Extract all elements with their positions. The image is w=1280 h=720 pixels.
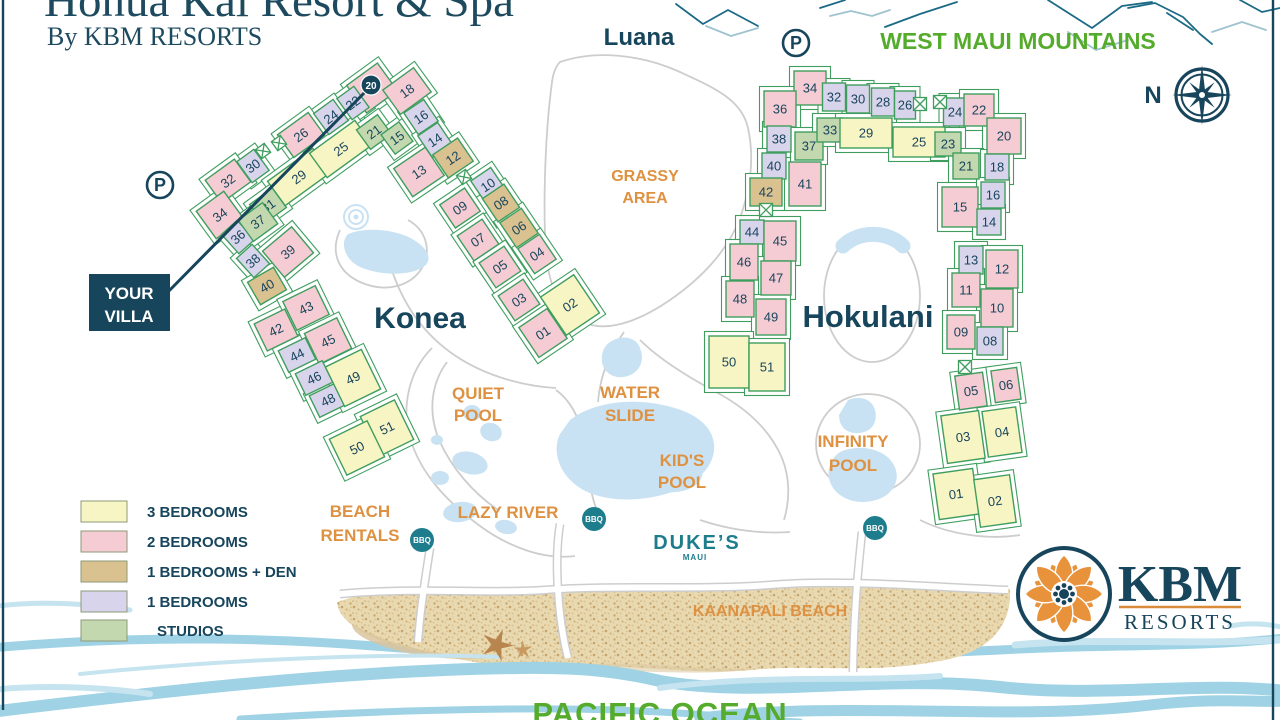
svg-text:BEACH: BEACH <box>330 502 390 521</box>
svg-text:WATER: WATER <box>600 383 660 402</box>
svg-text:VILLA: VILLA <box>104 307 153 326</box>
svg-text:37: 37 <box>802 139 816 154</box>
svg-text:02: 02 <box>987 493 1003 510</box>
svg-text:09: 09 <box>954 325 968 340</box>
svg-text:25: 25 <box>912 135 926 150</box>
svg-text:42: 42 <box>759 185 773 200</box>
svg-text:08: 08 <box>983 334 997 349</box>
svg-text:MAUI: MAUI <box>683 553 707 562</box>
svg-text:18: 18 <box>990 160 1004 175</box>
svg-text:KAANAPALI BEACH: KAANAPALI BEACH <box>693 603 847 620</box>
svg-text:20: 20 <box>997 129 1011 144</box>
svg-text:05: 05 <box>963 383 979 400</box>
svg-text:N: N <box>1144 82 1161 109</box>
svg-text:16: 16 <box>986 188 1000 203</box>
svg-text:AREA: AREA <box>622 190 668 207</box>
svg-text:28: 28 <box>876 95 890 110</box>
svg-text:47: 47 <box>769 271 783 286</box>
svg-text:BBQ: BBQ <box>585 515 603 524</box>
svg-text:12: 12 <box>995 262 1009 277</box>
svg-text:29: 29 <box>859 126 873 141</box>
svg-text:SLIDE: SLIDE <box>605 406 655 425</box>
svg-text:KID'S: KID'S <box>660 451 705 470</box>
svg-text:34: 34 <box>803 81 817 96</box>
svg-text:10: 10 <box>990 301 1004 316</box>
svg-text:30: 30 <box>851 92 865 107</box>
svg-text:49: 49 <box>764 310 778 325</box>
svg-text:KBM: KBM <box>1118 556 1242 613</box>
svg-text:20: 20 <box>365 81 377 92</box>
svg-text:33: 33 <box>823 123 837 138</box>
svg-text:YOUR: YOUR <box>104 284 153 303</box>
svg-text:1 BEDROOMS: 1 BEDROOMS <box>147 594 248 611</box>
svg-text:04: 04 <box>994 424 1010 441</box>
svg-text:3 BEDROOMS: 3 BEDROOMS <box>147 504 248 521</box>
svg-text:WEST MAUI MOUNTAINS: WEST MAUI MOUNTAINS <box>880 28 1156 54</box>
svg-text:23: 23 <box>941 137 955 152</box>
svg-text:DUKE’S: DUKE’S <box>653 532 741 554</box>
svg-text:BBQ: BBQ <box>866 524 884 533</box>
svg-text:P: P <box>154 175 166 195</box>
svg-text:24: 24 <box>948 105 962 120</box>
svg-text:51: 51 <box>760 360 774 375</box>
svg-text:PACIFIC OCEAN: PACIFIC OCEAN <box>532 696 787 720</box>
svg-text:RESORTS: RESORTS <box>1124 610 1236 634</box>
svg-text:26: 26 <box>898 98 912 113</box>
svg-text:POOL: POOL <box>454 406 502 425</box>
svg-text:POOL: POOL <box>658 473 706 492</box>
svg-text:13: 13 <box>964 253 978 268</box>
svg-text:45: 45 <box>773 234 787 249</box>
svg-text:01: 01 <box>948 486 964 503</box>
svg-text:QUIET: QUIET <box>452 384 505 403</box>
svg-text:22: 22 <box>972 103 986 118</box>
svg-text:50: 50 <box>722 355 736 370</box>
svg-text:BBQ: BBQ <box>413 536 431 545</box>
svg-text:44: 44 <box>745 225 759 240</box>
svg-text:STUDIOS: STUDIOS <box>157 623 224 640</box>
svg-text:32: 32 <box>827 90 841 105</box>
svg-text:Hokulani: Hokulani <box>803 299 934 334</box>
svg-text:11: 11 <box>959 283 973 298</box>
svg-text:1 BEDROOMS + DEN: 1 BEDROOMS + DEN <box>147 564 297 581</box>
svg-text:2 BEDROOMS: 2 BEDROOMS <box>147 534 248 551</box>
svg-text:41: 41 <box>798 177 812 192</box>
svg-text:46: 46 <box>737 255 751 270</box>
svg-text:LAZY RIVER: LAZY RIVER <box>458 503 559 522</box>
svg-text:15: 15 <box>953 200 967 215</box>
svg-text:By KBM RESORTS: By KBM RESORTS <box>47 22 262 51</box>
svg-text:P: P <box>790 33 802 53</box>
svg-text:POOL: POOL <box>829 456 877 475</box>
svg-text:48: 48 <box>733 292 747 307</box>
svg-text:03: 03 <box>955 429 971 446</box>
svg-text:21: 21 <box>959 159 973 174</box>
svg-text:Luana: Luana <box>604 24 675 51</box>
svg-text:INFINITY: INFINITY <box>818 432 889 451</box>
svg-text:RENTALS: RENTALS <box>320 526 399 545</box>
svg-text:14: 14 <box>982 215 996 230</box>
svg-text:38: 38 <box>772 132 786 147</box>
svg-text:36: 36 <box>773 102 787 117</box>
svg-text:40: 40 <box>767 159 781 174</box>
svg-text:Konea: Konea <box>374 302 466 335</box>
svg-text:06: 06 <box>998 377 1014 394</box>
svg-text:GRASSY: GRASSY <box>611 168 679 185</box>
